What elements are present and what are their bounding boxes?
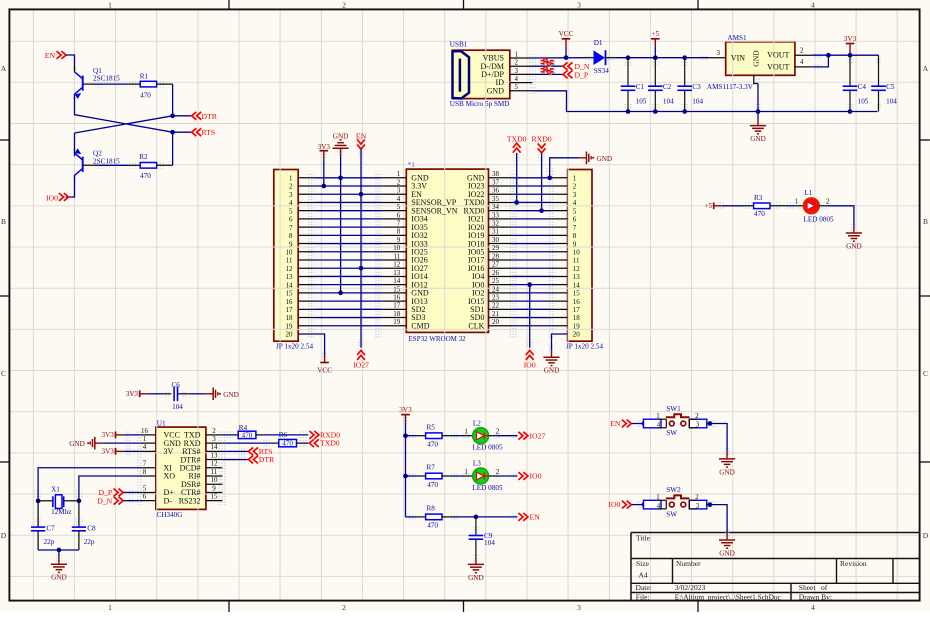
svg-text:14: 14 bbox=[393, 277, 401, 285]
svg-text:2: 2 bbox=[397, 178, 401, 186]
svg-text:15: 15 bbox=[573, 290, 581, 298]
svg-text:C6: C6 bbox=[172, 381, 181, 389]
svg-text:Sheet: Sheet bbox=[799, 583, 817, 592]
svg-text:34: 34 bbox=[492, 203, 500, 211]
svg-text:R4: R4 bbox=[239, 424, 248, 432]
svg-text:7: 7 bbox=[143, 460, 147, 468]
svg-text:C7: C7 bbox=[46, 524, 55, 532]
svg-text:C1: C1 bbox=[636, 83, 645, 91]
svg-text:470: 470 bbox=[140, 172, 151, 180]
svg-text:4: 4 bbox=[397, 195, 401, 203]
svg-text:23: 23 bbox=[492, 294, 500, 302]
svg-text:470: 470 bbox=[427, 481, 438, 489]
svg-text:2: 2 bbox=[515, 59, 519, 67]
svg-text:30: 30 bbox=[492, 236, 500, 244]
svg-text:17: 17 bbox=[393, 302, 401, 310]
svg-text:1: 1 bbox=[464, 468, 468, 476]
svg-text:22p: 22p bbox=[84, 538, 95, 546]
svg-text:D_P: D_P bbox=[575, 70, 589, 79]
svg-text:2: 2 bbox=[573, 183, 577, 191]
svg-text:X1: X1 bbox=[51, 486, 60, 494]
svg-text:5: 5 bbox=[397, 203, 401, 211]
svg-text:D: D bbox=[923, 531, 929, 540]
svg-text:11: 11 bbox=[573, 257, 580, 265]
svg-text:18: 18 bbox=[393, 310, 401, 318]
svg-text:9: 9 bbox=[397, 236, 401, 244]
svg-text:USB1: USB1 bbox=[450, 41, 468, 49]
svg-text:6: 6 bbox=[289, 216, 293, 224]
svg-text:R6: R6 bbox=[279, 431, 288, 439]
svg-text:L2: L2 bbox=[473, 419, 481, 427]
svg-text:3V: 3V bbox=[164, 447, 174, 456]
svg-text:Drawn By:: Drawn By: bbox=[799, 592, 832, 601]
svg-text:Q1: Q1 bbox=[93, 67, 102, 75]
svg-text:VCC: VCC bbox=[559, 30, 574, 38]
svg-text:5: 5 bbox=[289, 207, 293, 215]
svg-text:11: 11 bbox=[393, 252, 400, 260]
svg-text:VOUT: VOUT bbox=[767, 63, 789, 72]
svg-text:of: of bbox=[821, 583, 828, 592]
svg-text:AMS1117-3.3V: AMS1117-3.3V bbox=[707, 83, 754, 91]
svg-text:GND: GND bbox=[719, 468, 735, 476]
svg-text:IO0: IO0 bbox=[608, 500, 620, 509]
svg-text:D1: D1 bbox=[594, 39, 603, 47]
svg-text:37: 37 bbox=[492, 178, 500, 186]
svg-text:36: 36 bbox=[492, 187, 500, 195]
svg-text:11: 11 bbox=[286, 257, 293, 265]
svg-text:R2: R2 bbox=[139, 153, 148, 161]
svg-text:2: 2 bbox=[695, 413, 699, 420]
svg-text:21: 21 bbox=[492, 310, 500, 318]
svg-text:USB Micro 5p SMD: USB Micro 5p SMD bbox=[450, 100, 510, 108]
svg-text:32: 32 bbox=[492, 220, 500, 228]
svg-text:13: 13 bbox=[393, 269, 401, 277]
svg-text:R1: R1 bbox=[140, 73, 149, 81]
svg-text:19: 19 bbox=[286, 322, 294, 330]
svg-text:EN: EN bbox=[530, 513, 541, 522]
svg-text:7: 7 bbox=[397, 220, 401, 228]
svg-text:3: 3 bbox=[696, 422, 700, 429]
svg-text:Date:: Date: bbox=[636, 583, 652, 592]
svg-text:DTR: DTR bbox=[202, 112, 218, 121]
svg-text:RTS: RTS bbox=[202, 128, 216, 137]
svg-text:C8: C8 bbox=[87, 524, 96, 532]
svg-text:IO27: IO27 bbox=[353, 360, 369, 369]
svg-text:GND: GND bbox=[719, 549, 735, 557]
svg-text:C4: C4 bbox=[858, 83, 867, 91]
svg-text:B: B bbox=[923, 217, 928, 226]
svg-text:13: 13 bbox=[286, 273, 294, 281]
svg-text:10: 10 bbox=[393, 244, 401, 252]
svg-text:17: 17 bbox=[573, 306, 581, 314]
svg-text:18: 18 bbox=[286, 314, 294, 322]
svg-text:470: 470 bbox=[140, 92, 151, 100]
svg-text:GND: GND bbox=[468, 574, 484, 582]
svg-text:GND: GND bbox=[333, 132, 349, 140]
svg-text:8: 8 bbox=[143, 468, 147, 476]
svg-text:GND: GND bbox=[51, 574, 67, 582]
svg-text:4: 4 bbox=[515, 75, 519, 83]
svg-text:GND: GND bbox=[846, 242, 862, 250]
svg-text:33: 33 bbox=[492, 211, 500, 219]
svg-text:4: 4 bbox=[657, 503, 661, 510]
svg-text:IO0: IO0 bbox=[530, 472, 542, 481]
svg-text:1: 1 bbox=[656, 494, 659, 501]
svg-text:104: 104 bbox=[484, 539, 495, 547]
svg-text:29: 29 bbox=[492, 244, 500, 252]
svg-text:+5: +5 bbox=[651, 30, 659, 38]
svg-text:1: 1 bbox=[515, 50, 519, 58]
svg-text:VOUT: VOUT bbox=[767, 51, 789, 60]
svg-text:R5: R5 bbox=[427, 423, 436, 431]
svg-text:1: 1 bbox=[464, 428, 468, 436]
svg-text:Revision: Revision bbox=[840, 559, 867, 568]
svg-text:2: 2 bbox=[342, 0, 346, 9]
svg-text:104: 104 bbox=[663, 97, 674, 105]
svg-text:GND: GND bbox=[597, 155, 613, 163]
svg-text:4: 4 bbox=[289, 199, 293, 207]
svg-text:XO: XO bbox=[164, 472, 176, 481]
svg-text:22: 22 bbox=[492, 302, 500, 310]
svg-text:24: 24 bbox=[492, 285, 500, 293]
svg-text:9: 9 bbox=[289, 240, 293, 248]
svg-text:1: 1 bbox=[289, 175, 293, 183]
svg-text:2: 2 bbox=[496, 428, 500, 436]
svg-text:CLK: CLK bbox=[468, 321, 484, 330]
svg-text:1: 1 bbox=[108, 603, 112, 612]
svg-text:C5: C5 bbox=[886, 83, 895, 91]
svg-text:12: 12 bbox=[211, 460, 219, 468]
svg-text:470: 470 bbox=[427, 522, 438, 530]
svg-text:JP 1x20 2.54: JP 1x20 2.54 bbox=[566, 342, 603, 350]
svg-text:12Mhz: 12Mhz bbox=[51, 508, 71, 516]
svg-text:Q2: Q2 bbox=[93, 150, 102, 158]
svg-text:C3: C3 bbox=[692, 83, 701, 91]
svg-text:20: 20 bbox=[492, 318, 500, 326]
svg-text:L1: L1 bbox=[804, 189, 812, 197]
svg-text:LED 0805: LED 0805 bbox=[472, 484, 503, 492]
svg-text:GND: GND bbox=[544, 367, 560, 375]
svg-text:GND: GND bbox=[69, 440, 85, 448]
svg-text:CH340G: CH340G bbox=[157, 511, 183, 519]
svg-text:*1: *1 bbox=[408, 161, 416, 169]
svg-text:13: 13 bbox=[211, 451, 219, 459]
svg-text:35: 35 bbox=[492, 195, 500, 203]
svg-text:4: 4 bbox=[811, 603, 815, 612]
svg-text:3V3: 3V3 bbox=[318, 143, 331, 151]
svg-text:EN: EN bbox=[610, 419, 621, 428]
svg-text:GND: GND bbox=[752, 50, 761, 67]
svg-text:470: 470 bbox=[242, 431, 253, 439]
svg-text:20: 20 bbox=[573, 331, 581, 339]
svg-text:13: 13 bbox=[573, 273, 581, 281]
svg-text:38: 38 bbox=[492, 170, 500, 178]
svg-text:2: 2 bbox=[212, 427, 216, 435]
svg-text:3: 3 bbox=[289, 191, 293, 199]
svg-text:18: 18 bbox=[573, 314, 581, 322]
svg-text:16: 16 bbox=[286, 298, 294, 306]
svg-text:D_N: D_N bbox=[97, 496, 112, 505]
svg-text:JP 1x20 2.54: JP 1x20 2.54 bbox=[276, 342, 313, 350]
svg-text:16: 16 bbox=[141, 427, 149, 435]
svg-text:2: 2 bbox=[695, 494, 699, 501]
svg-text:GND: GND bbox=[750, 135, 766, 143]
svg-text:15: 15 bbox=[286, 290, 294, 298]
svg-text:IO0: IO0 bbox=[524, 360, 536, 369]
svg-text:Title: Title bbox=[636, 534, 651, 543]
svg-text:VIN: VIN bbox=[731, 53, 745, 62]
svg-text:16: 16 bbox=[573, 298, 581, 306]
svg-text:IO27: IO27 bbox=[530, 431, 546, 440]
svg-text:6: 6 bbox=[397, 211, 401, 219]
svg-text:22p: 22p bbox=[44, 538, 55, 546]
svg-text:17: 17 bbox=[286, 306, 294, 314]
svg-text:L3: L3 bbox=[473, 460, 481, 468]
svg-text:SS34: SS34 bbox=[594, 67, 610, 75]
svg-text:3: 3 bbox=[573, 191, 577, 199]
svg-text:6: 6 bbox=[143, 493, 147, 501]
svg-text:4: 4 bbox=[143, 443, 147, 451]
svg-text:DTR: DTR bbox=[259, 455, 275, 464]
svg-text:2: 2 bbox=[496, 468, 500, 476]
svg-text:2: 2 bbox=[800, 46, 804, 54]
svg-text:+5: +5 bbox=[704, 202, 712, 210]
svg-text:10: 10 bbox=[286, 248, 294, 256]
svg-text:9: 9 bbox=[212, 484, 216, 492]
svg-text:5: 5 bbox=[515, 83, 519, 91]
svg-text:SW1: SW1 bbox=[666, 405, 681, 413]
svg-text:14: 14 bbox=[573, 281, 581, 289]
svg-text:1: 1 bbox=[573, 175, 577, 183]
svg-text:1: 1 bbox=[656, 413, 659, 420]
svg-text:2: 2 bbox=[342, 603, 346, 612]
svg-text:26: 26 bbox=[492, 269, 500, 277]
svg-text:10: 10 bbox=[573, 248, 581, 256]
svg-text:LED 0805: LED 0805 bbox=[804, 215, 835, 223]
svg-text:7: 7 bbox=[289, 224, 293, 232]
svg-text:3V3: 3V3 bbox=[102, 448, 115, 456]
svg-text:R7: R7 bbox=[427, 464, 436, 472]
svg-text:SW: SW bbox=[666, 429, 677, 437]
svg-text:SW: SW bbox=[666, 510, 677, 518]
svg-text:12: 12 bbox=[393, 261, 401, 269]
svg-text:1: 1 bbox=[795, 197, 799, 205]
svg-text:Size: Size bbox=[636, 559, 650, 568]
svg-text:GND: GND bbox=[223, 391, 239, 399]
svg-text:2SC1815: 2SC1815 bbox=[93, 75, 120, 83]
svg-text:A: A bbox=[923, 64, 929, 73]
svg-text:104: 104 bbox=[692, 97, 703, 105]
svg-text:31: 31 bbox=[492, 228, 500, 236]
svg-text:10: 10 bbox=[211, 476, 219, 484]
svg-text:3/02/2023: 3/02/2023 bbox=[675, 583, 706, 592]
svg-text:14: 14 bbox=[286, 281, 294, 289]
svg-text:R3: R3 bbox=[754, 194, 763, 202]
svg-text:U1: U1 bbox=[157, 420, 166, 428]
svg-text:9: 9 bbox=[573, 240, 577, 248]
svg-text:3: 3 bbox=[717, 49, 721, 57]
svg-text:470: 470 bbox=[282, 440, 293, 448]
svg-text:105: 105 bbox=[858, 97, 869, 105]
svg-text:6: 6 bbox=[573, 216, 577, 224]
svg-text:4: 4 bbox=[800, 58, 804, 66]
svg-text:3V3: 3V3 bbox=[399, 406, 412, 414]
svg-text:3: 3 bbox=[397, 187, 401, 195]
svg-text:ESP32 WROOM 32: ESP32 WROOM 32 bbox=[409, 335, 467, 343]
svg-text:104: 104 bbox=[886, 97, 897, 105]
svg-text:C: C bbox=[1, 369, 6, 378]
svg-text:C: C bbox=[923, 369, 928, 378]
svg-text:2SC1815: 2SC1815 bbox=[93, 157, 120, 165]
svg-text:2: 2 bbox=[289, 183, 293, 191]
svg-text:TXD0: TXD0 bbox=[320, 439, 340, 448]
svg-text:3V3: 3V3 bbox=[102, 431, 115, 439]
svg-text:12: 12 bbox=[286, 265, 294, 273]
svg-text:3: 3 bbox=[577, 0, 581, 9]
svg-text:8: 8 bbox=[397, 228, 401, 236]
svg-text:3V3: 3V3 bbox=[844, 35, 857, 43]
svg-text:16: 16 bbox=[393, 294, 401, 302]
svg-text:104: 104 bbox=[172, 403, 183, 411]
svg-text:4: 4 bbox=[811, 0, 815, 9]
svg-text:470: 470 bbox=[754, 210, 765, 218]
svg-text:12: 12 bbox=[573, 265, 581, 273]
svg-text:27: 27 bbox=[492, 261, 500, 269]
svg-text:11: 11 bbox=[211, 468, 218, 476]
svg-text:EN: EN bbox=[45, 51, 56, 60]
svg-text:TXD0: TXD0 bbox=[507, 134, 527, 143]
svg-text:Number: Number bbox=[676, 559, 701, 568]
svg-text:A: A bbox=[1, 64, 7, 73]
svg-text:1: 1 bbox=[143, 435, 147, 443]
svg-text:8: 8 bbox=[573, 232, 577, 240]
svg-text:D: D bbox=[1, 531, 7, 540]
svg-text:25: 25 bbox=[492, 277, 500, 285]
svg-text:5: 5 bbox=[573, 207, 577, 215]
svg-text:4: 4 bbox=[573, 199, 577, 207]
svg-text:105: 105 bbox=[636, 97, 647, 105]
svg-text:15: 15 bbox=[211, 493, 219, 501]
svg-text:C2: C2 bbox=[663, 83, 672, 91]
svg-text:CMD: CMD bbox=[411, 321, 429, 330]
svg-text:D-: D- bbox=[164, 496, 173, 505]
svg-text:AMS1: AMS1 bbox=[727, 34, 747, 42]
svg-text:15: 15 bbox=[393, 285, 401, 293]
svg-text:LED 0805: LED 0805 bbox=[472, 444, 503, 452]
svg-text:8: 8 bbox=[289, 232, 293, 240]
svg-text:1: 1 bbox=[108, 0, 112, 9]
svg-text:1: 1 bbox=[397, 170, 401, 178]
svg-text:GND: GND bbox=[487, 86, 505, 95]
svg-text:470: 470 bbox=[427, 441, 438, 449]
svg-text:IO0: IO0 bbox=[46, 193, 58, 202]
svg-text:3: 3 bbox=[515, 67, 519, 75]
svg-text:3V3: 3V3 bbox=[126, 390, 139, 398]
svg-text:VCC: VCC bbox=[317, 367, 332, 375]
svg-text:A4: A4 bbox=[639, 571, 648, 580]
svg-text:RS232: RS232 bbox=[179, 496, 201, 505]
svg-text:E:\Altium_project\..\Sheet1.Sc: E:\Altium_project\..\Sheet1.SchDoc bbox=[675, 592, 782, 601]
svg-text:19: 19 bbox=[393, 318, 401, 326]
svg-text:RXD0: RXD0 bbox=[532, 134, 552, 143]
svg-text:5: 5 bbox=[143, 484, 147, 492]
svg-text:3: 3 bbox=[577, 603, 581, 612]
svg-text:SW2: SW2 bbox=[666, 486, 681, 494]
svg-text:File:: File: bbox=[636, 592, 650, 601]
svg-text:R8: R8 bbox=[427, 505, 436, 513]
svg-text:14: 14 bbox=[211, 443, 219, 451]
svg-text:19: 19 bbox=[573, 322, 581, 330]
svg-text:4: 4 bbox=[657, 422, 661, 429]
svg-text:28: 28 bbox=[492, 252, 500, 260]
svg-text:20: 20 bbox=[286, 331, 294, 339]
svg-text:3: 3 bbox=[212, 435, 216, 443]
svg-text:7: 7 bbox=[573, 224, 577, 232]
svg-text:2: 2 bbox=[826, 197, 830, 205]
svg-text:3: 3 bbox=[696, 503, 700, 510]
svg-text:B: B bbox=[1, 217, 6, 226]
